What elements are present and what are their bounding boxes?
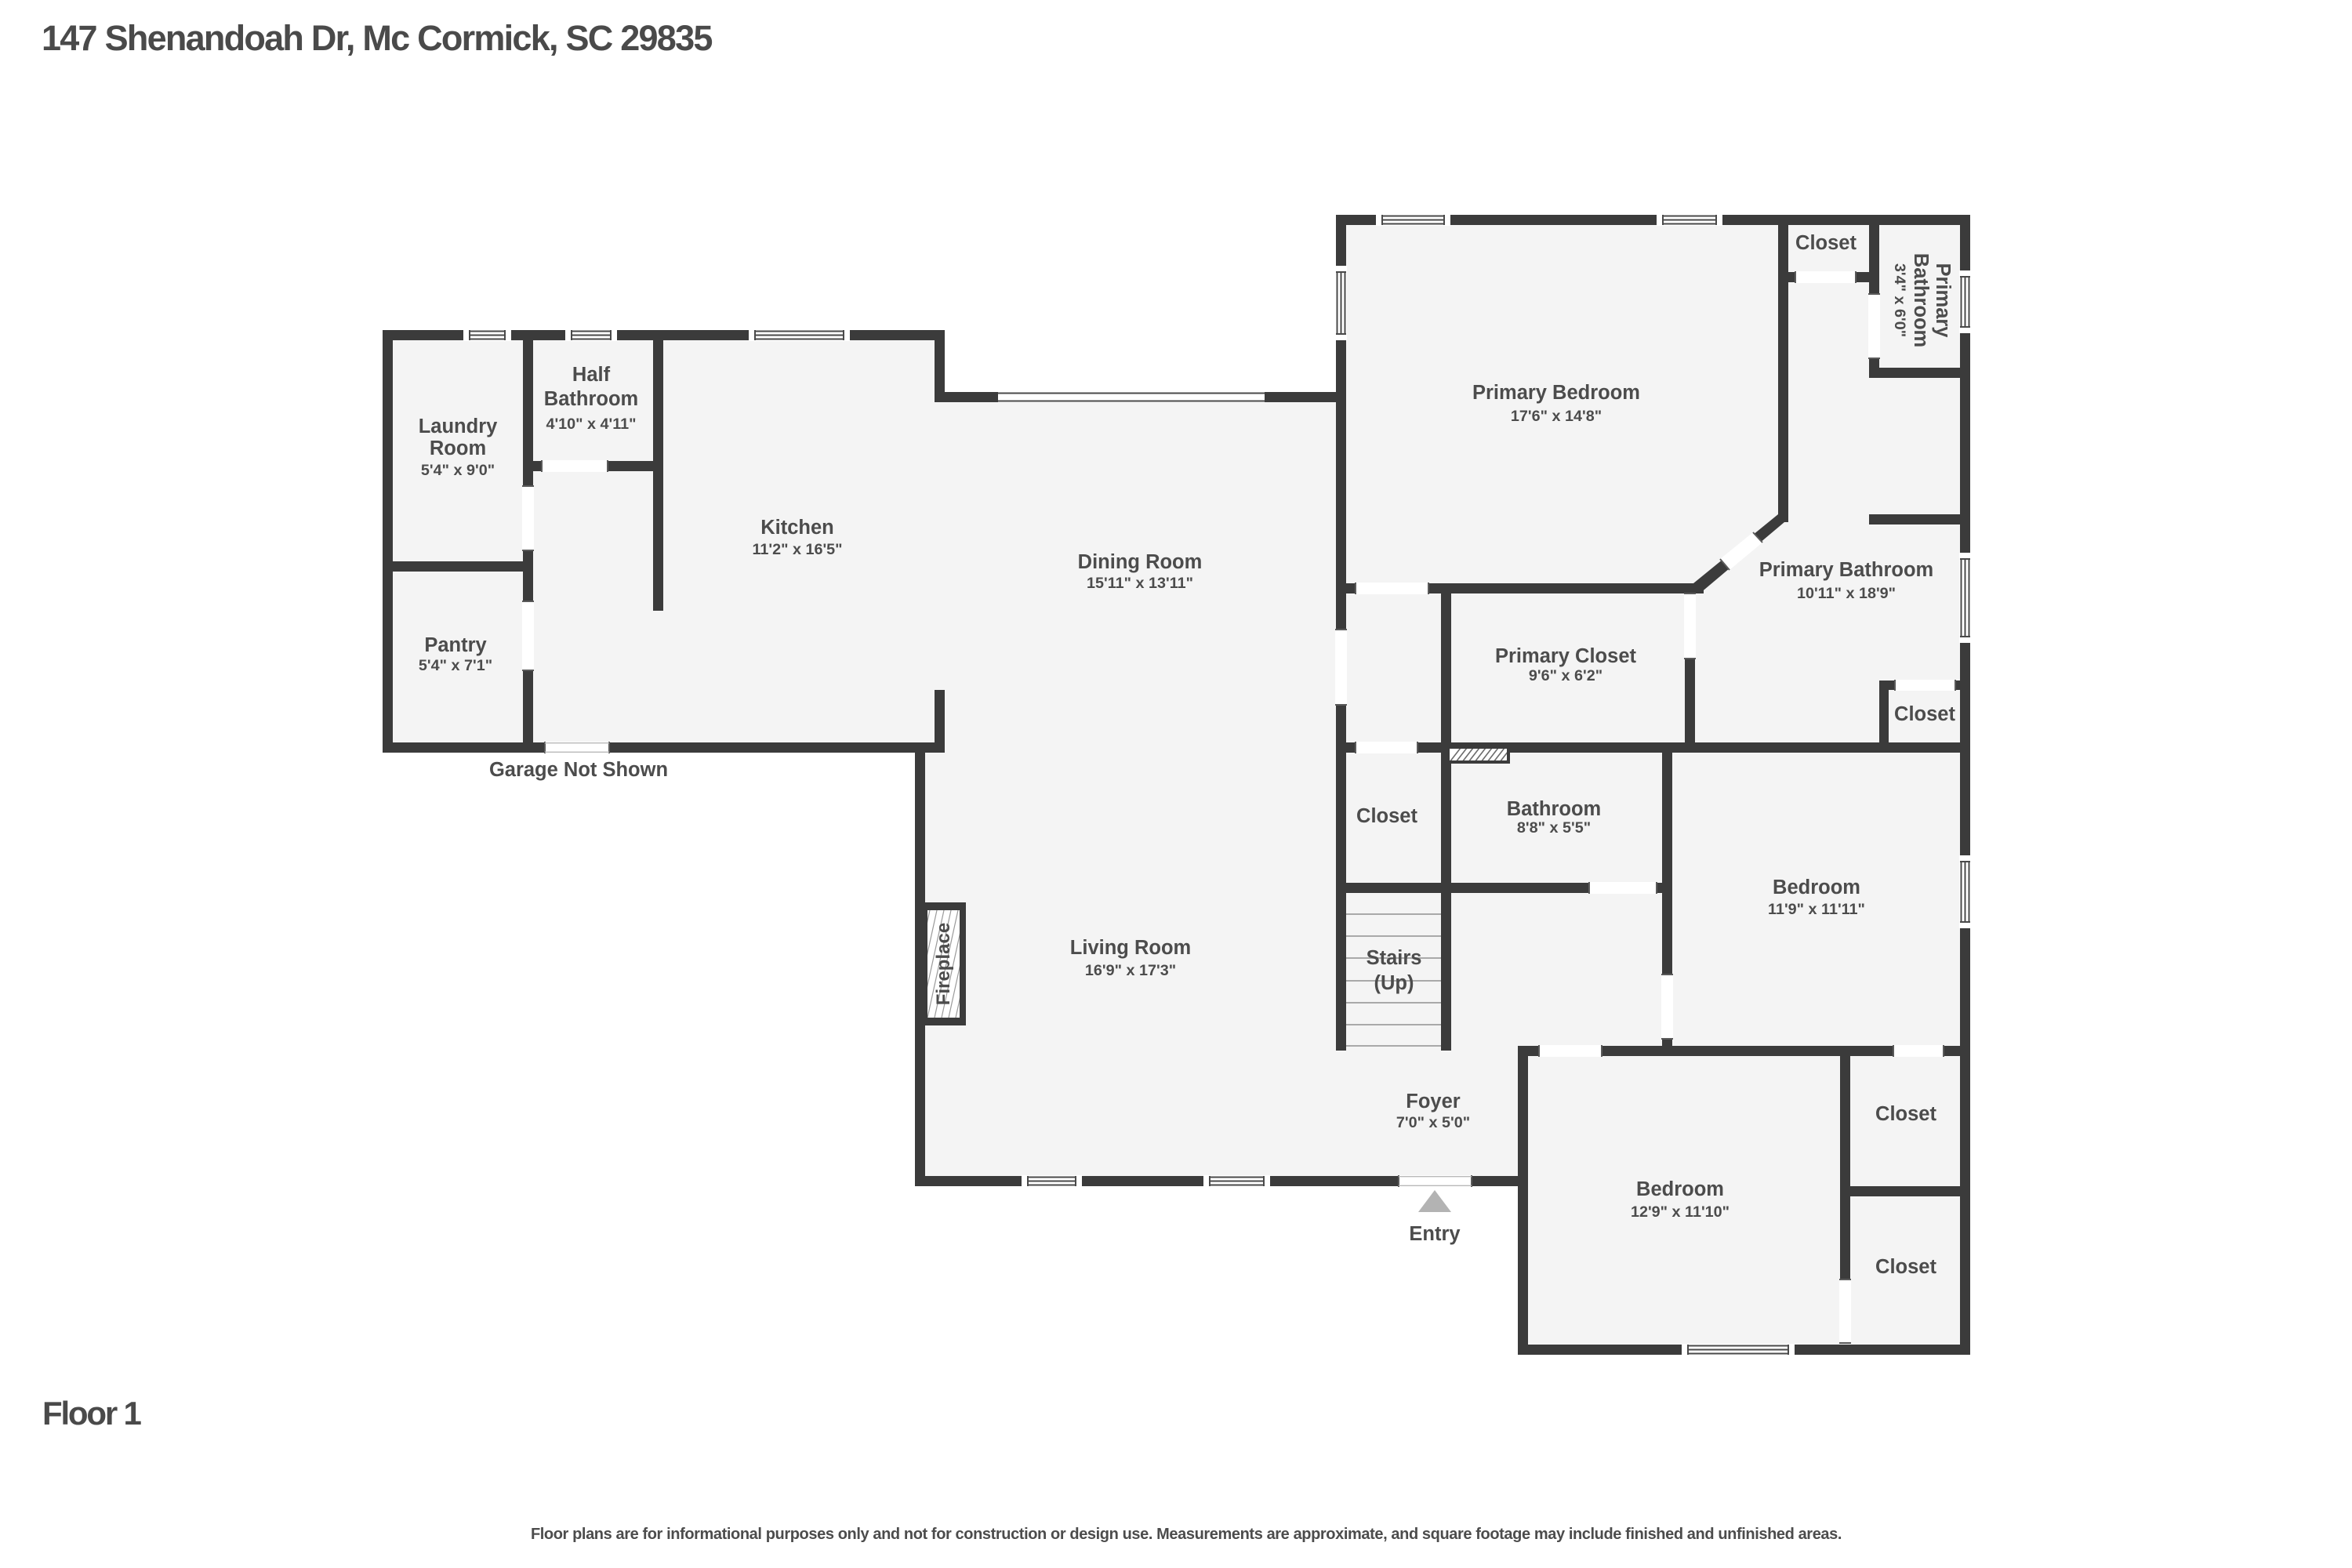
- svg-text:Garage Not Shown: Garage Not Shown: [489, 759, 668, 781]
- svg-text:5'4" x 7'1": 5'4" x 7'1": [419, 657, 492, 674]
- svg-text:Primary Bedroom: Primary Bedroom: [1472, 382, 1640, 404]
- svg-text:11'2" x 16'5": 11'2" x 16'5": [752, 541, 842, 558]
- svg-text:Kitchen: Kitchen: [760, 517, 834, 539]
- svg-text:16'9" x 17'3": 16'9" x 17'3": [1085, 962, 1176, 979]
- svg-text:Stairs: Stairs: [1367, 947, 1422, 969]
- svg-text:7'0" x 5'0": 7'0" x 5'0": [1396, 1114, 1470, 1131]
- svg-text:Closet: Closet: [1875, 1103, 1936, 1125]
- svg-text:Half: Half: [572, 364, 611, 386]
- svg-text:Closet: Closet: [1795, 232, 1857, 254]
- svg-text:Foyer: Foyer: [1406, 1091, 1461, 1112]
- svg-text:Closet: Closet: [1894, 703, 1955, 725]
- svg-text:Laundry: Laundry: [419, 416, 498, 437]
- svg-text:Primary Closet: Primary Closet: [1495, 645, 1637, 667]
- svg-text:Closet: Closet: [1356, 805, 1417, 827]
- svg-text:Bathroom: Bathroom: [1507, 798, 1601, 820]
- svg-text:Bathroom: Bathroom: [1910, 253, 1932, 347]
- svg-text:(Up): (Up): [1374, 972, 1414, 994]
- svg-text:Primary Bathroom: Primary Bathroom: [1759, 559, 1933, 581]
- svg-text:10'11" x 18'9": 10'11" x 18'9": [1797, 585, 1896, 602]
- svg-text:Bedroom: Bedroom: [1773, 877, 1860, 898]
- svg-text:4'10" x 4'11": 4'10" x 4'11": [546, 416, 636, 433]
- svg-text:17'6" x 14'8": 17'6" x 14'8": [1511, 408, 1602, 425]
- svg-text:Primary: Primary: [1932, 263, 1954, 339]
- svg-text:11'9" x 11'11": 11'9" x 11'11": [1768, 901, 1865, 918]
- svg-text:Entry: Entry: [1409, 1223, 1461, 1245]
- svg-text:15'11" x 13'11": 15'11" x 13'11": [1087, 575, 1193, 592]
- svg-text:5'4" x 9'0": 5'4" x 9'0": [421, 462, 495, 479]
- svg-text:Living Room: Living Room: [1070, 937, 1191, 959]
- svg-text:Fireplace: Fireplace: [933, 923, 954, 1005]
- svg-text:Bedroom: Bedroom: [1636, 1178, 1724, 1200]
- svg-text:Closet: Closet: [1875, 1256, 1936, 1278]
- svg-text:Room: Room: [430, 437, 486, 459]
- svg-text:Pantry: Pantry: [424, 634, 487, 656]
- svg-text:Dining Room: Dining Room: [1078, 551, 1203, 573]
- svg-text:Bathroom: Bathroom: [544, 388, 638, 410]
- svg-text:3'4" x 6'0": 3'4" x 6'0": [1891, 263, 1908, 337]
- svg-text:9'6" x 6'2": 9'6" x 6'2": [1529, 667, 1602, 684]
- svg-text:12'9" x 11'10": 12'9" x 11'10": [1631, 1203, 1730, 1221]
- svg-text:8'8" x 5'5": 8'8" x 5'5": [1517, 819, 1591, 837]
